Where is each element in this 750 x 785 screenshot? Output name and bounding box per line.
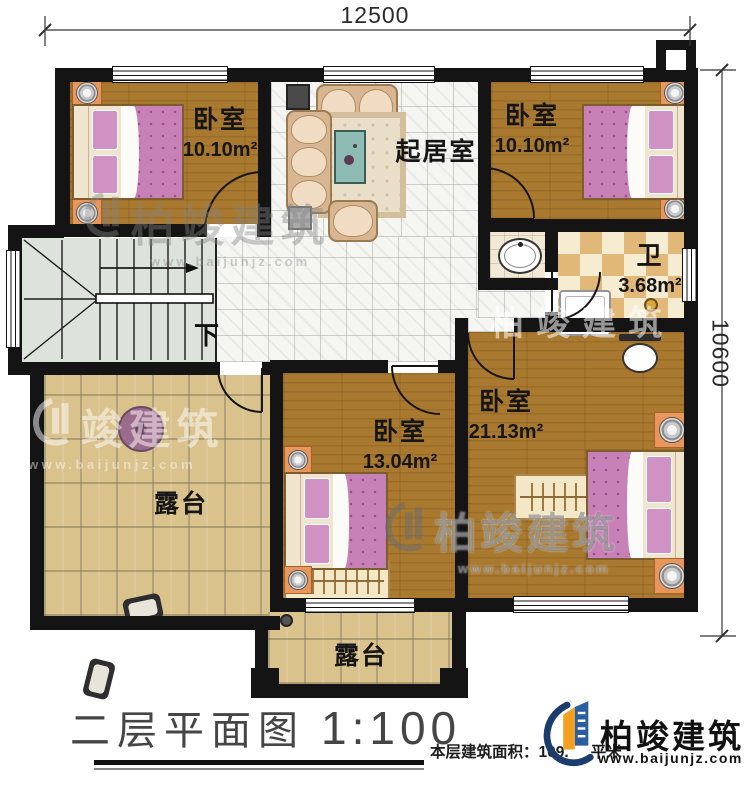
stairs-down-label: 下 <box>194 316 219 352</box>
terrace-drain <box>280 614 293 627</box>
terrace-corner-post <box>440 668 468 698</box>
room-area: 10.10m² <box>474 133 590 159</box>
floor-hallway <box>216 237 478 362</box>
toilet-tank <box>619 334 661 341</box>
duvet <box>588 452 643 558</box>
wall-bedroomMid-left <box>270 362 283 612</box>
washbasin <box>498 238 542 274</box>
sliding-door-terrace <box>305 598 415 613</box>
cushion <box>291 147 327 176</box>
room-label-bedroom-middle: 卧室 13.04m² <box>352 416 448 475</box>
wall-right <box>684 68 698 612</box>
side-table <box>288 206 312 230</box>
room-name: 卫 <box>610 240 690 273</box>
room-label-bathroom: 卫 3.68m² <box>610 240 690 299</box>
room-area: 13.04m² <box>352 449 448 475</box>
lamp-icon <box>76 202 98 224</box>
cushion <box>291 180 327 209</box>
nightstand <box>284 566 312 594</box>
toilet-bowl <box>622 343 658 373</box>
lamp-icon <box>288 570 309 591</box>
dimension-height-label: 10600 <box>707 299 734 409</box>
toilet <box>617 334 663 374</box>
lamp-icon <box>664 82 686 104</box>
pillows <box>301 474 333 568</box>
company-logo-icon <box>540 698 598 772</box>
lamp-icon <box>659 417 685 443</box>
pillows <box>89 106 121 198</box>
room-label-terrace-left: 露台 <box>146 488 216 521</box>
wall-left-upper <box>55 68 70 237</box>
floor-plan-canvas: 12500 10600 卧室 10.10m² 起居室 卧室 10.10m² 卫 … <box>0 0 750 785</box>
room-area: 3.68m² <box>610 273 690 299</box>
coffee-table <box>334 130 366 184</box>
floor-passage <box>478 290 545 318</box>
window-top-right <box>530 66 644 83</box>
room-name: 卧室 <box>458 386 554 419</box>
terrace-table <box>118 406 164 452</box>
cabinet <box>286 84 310 110</box>
floor-stairwell <box>22 238 216 362</box>
pillow <box>648 155 674 195</box>
plan-title: 二层平面图 <box>70 709 305 753</box>
window-top-left <box>112 66 228 83</box>
wall-terraceB-bottom <box>255 684 466 698</box>
lamp-icon <box>288 450 309 471</box>
title-underline-thick <box>94 760 424 765</box>
pillow <box>92 110 118 150</box>
headboard <box>286 474 301 568</box>
room-label-terrace-bottom: 露台 <box>326 640 396 673</box>
pillow <box>646 456 672 503</box>
pillows <box>645 106 677 198</box>
room-name: 卧室 <box>352 416 448 449</box>
armchair <box>328 200 378 242</box>
company-url: www.baijunjz.com <box>598 750 743 766</box>
title-block: 二层平面图1:100 <box>70 698 461 756</box>
chimney <box>656 40 696 80</box>
room-label-bedroom-right: 卧室 21.13m² <box>458 386 554 445</box>
plan-scale: 1:100 <box>321 702 461 754</box>
lamp-icon <box>659 563 685 589</box>
duvet <box>333 474 386 568</box>
window-bedroom-right <box>513 596 629 613</box>
pillow <box>648 110 674 150</box>
wall-bath-left-upper <box>545 232 558 272</box>
company-logo: 柏竣建筑 www.baijunjz.com <box>540 696 750 782</box>
terrace-chair <box>82 657 116 700</box>
headboard <box>74 106 89 198</box>
room-area: 21.13m² <box>458 419 554 445</box>
room-name: 起居室 <box>386 136 486 169</box>
room-name: 卧室 <box>162 104 278 137</box>
wall-bedroomTL-bottom <box>55 224 207 237</box>
wall-bottom-left <box>270 598 305 612</box>
terrace-corner-post <box>251 668 279 698</box>
nightstand <box>284 446 312 474</box>
bed-top-right <box>582 104 694 200</box>
lamp-icon <box>664 198 686 220</box>
sofa-left <box>286 110 332 214</box>
wall-bedroomTR-bottom <box>478 219 698 232</box>
duvet <box>584 106 645 198</box>
pillow <box>646 508 672 555</box>
wall-terrace-left <box>30 375 44 630</box>
room-label-bedroom-top-right: 卧室 10.10m² <box>474 100 590 159</box>
room-label-living: 起居室 <box>386 136 486 169</box>
pillow <box>304 478 330 519</box>
room-area: 10.10m² <box>162 137 278 163</box>
room-name: 露台 <box>146 488 216 521</box>
window-stairwell <box>6 250 22 348</box>
pillow <box>304 524 330 565</box>
lamp-icon <box>76 82 98 104</box>
room-name: 卧室 <box>474 100 590 133</box>
room-name: 露台 <box>326 640 396 673</box>
wall-stair-bottom <box>8 362 220 375</box>
wall-nook-bottom <box>478 278 558 290</box>
title-underline-thin <box>94 768 424 770</box>
wall-bath-bottom <box>514 318 698 332</box>
window-top-living <box>323 66 435 83</box>
cushion <box>333 205 373 237</box>
bed-middle <box>284 472 388 570</box>
room-label-bedroom-top-left: 卧室 10.10m² <box>162 104 278 163</box>
pillow <box>92 155 118 195</box>
bed-right <box>586 450 692 560</box>
wall-bedrooms-divider <box>455 318 468 612</box>
dimension-width-label: 12500 <box>330 2 420 29</box>
pillows <box>643 452 675 558</box>
floor-door-gap <box>468 318 514 332</box>
wall-nook-left <box>478 232 490 278</box>
cushion <box>291 115 327 144</box>
floor-drain <box>644 298 658 312</box>
wall-terrace-bottom <box>30 616 280 630</box>
wall-bedroomMid-top-left <box>270 360 388 373</box>
wall-bedroomMid-top-right <box>438 360 455 373</box>
